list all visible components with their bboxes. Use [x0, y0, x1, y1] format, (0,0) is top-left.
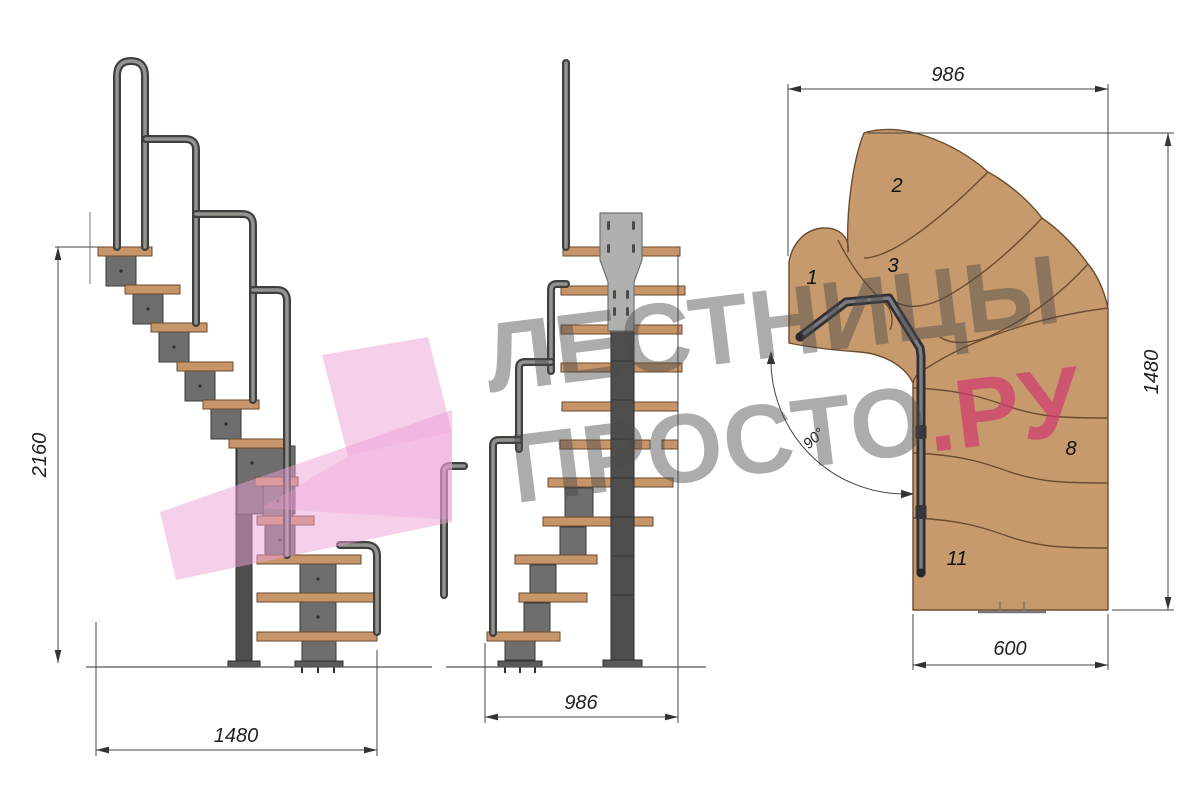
dim-plan-top-width: 986 [931, 64, 965, 86]
step-label-11: 11 [947, 548, 968, 570]
staircase-drawing: 2160 1480 [0, 0, 1200, 790]
dim-plan-bottom-width: 600 [993, 638, 1026, 660]
dim-front-width: 986 [564, 692, 598, 714]
watermark-line2-pink: .РУ [920, 345, 1088, 473]
step-label-2: 2 [890, 175, 902, 197]
dim-side-width: 1480 [214, 725, 259, 747]
dim-plan-height: 1480 [1141, 350, 1163, 395]
drawing-svg: 2160 1480 [0, 0, 1200, 790]
dim-side-height: 2160 [29, 433, 51, 479]
